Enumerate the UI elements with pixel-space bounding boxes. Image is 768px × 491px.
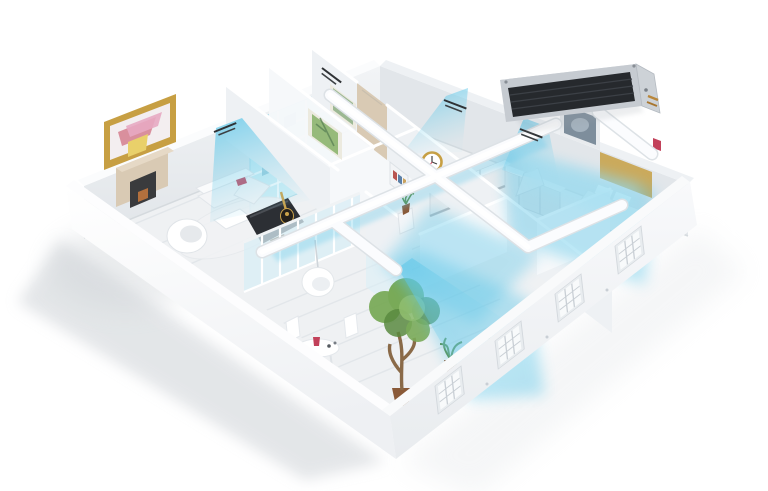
apartment-3d-render (0, 0, 768, 491)
product-render-canvas (0, 0, 768, 491)
chair (344, 313, 358, 338)
ac-unit (500, 64, 660, 134)
kettle (313, 337, 320, 346)
egg-chair (167, 219, 207, 253)
